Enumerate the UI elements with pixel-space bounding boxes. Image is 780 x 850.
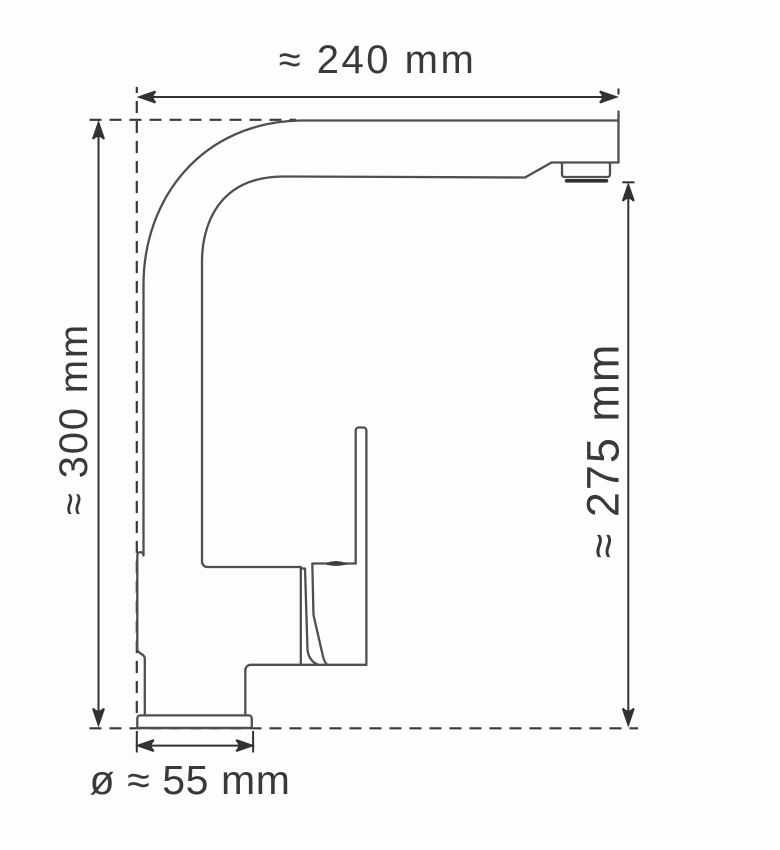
svg-text:≈ 275 mm: ≈ 275 mm — [578, 343, 629, 559]
svg-text:≈ 240 mm: ≈ 240 mm — [279, 38, 477, 82]
svg-text:≈ 300 mm: ≈ 300 mm — [52, 323, 96, 515]
svg-text:ø ≈ 55 mm: ø ≈ 55 mm — [89, 757, 290, 803]
